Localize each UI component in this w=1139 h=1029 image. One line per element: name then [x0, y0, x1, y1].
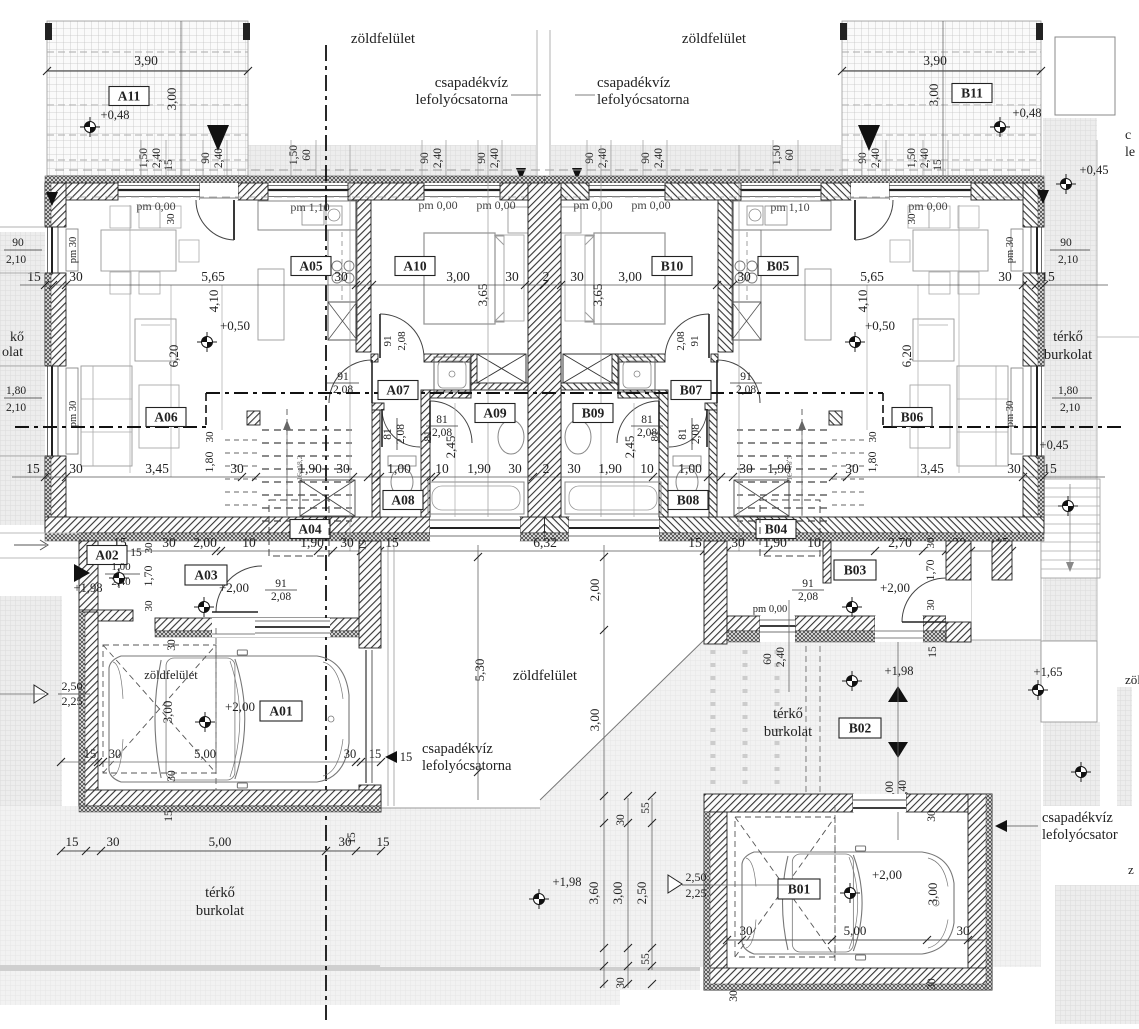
svg-text:90: 90	[640, 152, 652, 164]
svg-text:3,00: 3,00	[926, 84, 941, 107]
svg-text:2,08: 2,08	[690, 424, 702, 444]
svg-text:15: 15	[688, 535, 702, 550]
svg-text:15: 15	[369, 747, 382, 761]
svg-text:5,00: 5,00	[209, 834, 232, 849]
svg-text:3,45: 3,45	[145, 461, 169, 476]
svg-text:2,00: 2,00	[193, 535, 217, 550]
svg-text:zöldfelület: zöldfelület	[351, 31, 416, 47]
svg-text:B09: B09	[582, 406, 605, 421]
svg-text:5,30: 5,30	[472, 659, 487, 682]
svg-text:30: 30	[162, 535, 176, 550]
svg-text:zöldfelület: zöldfelület	[513, 668, 578, 684]
svg-text:2,08: 2,08	[395, 424, 407, 444]
svg-text:pm 0,00: pm 0,00	[418, 198, 457, 212]
svg-text:2,25: 2,25	[62, 694, 83, 708]
svg-text:30: 30	[737, 269, 751, 284]
svg-text:3,90: 3,90	[923, 53, 947, 68]
svg-text:30: 30	[336, 461, 350, 476]
svg-text:kő: kő	[10, 330, 24, 345]
svg-text:2,45: 2,45	[622, 436, 637, 459]
svg-text:B05: B05	[767, 259, 790, 274]
svg-text:15: 15	[163, 159, 175, 171]
svg-text:1,80: 1,80	[865, 452, 879, 473]
svg-text:2,50: 2,50	[62, 679, 83, 693]
svg-text:térkő: térkő	[1053, 329, 1083, 345]
svg-text:pm 30: pm 30	[68, 401, 79, 428]
svg-text:pm 0,00: pm 0,00	[631, 198, 670, 212]
svg-text:55: 55	[640, 953, 652, 965]
svg-text:2,08: 2,08	[333, 384, 353, 396]
svg-text:15: 15	[84, 747, 97, 761]
svg-text:91: 91	[275, 578, 287, 590]
svg-text:pm 30: pm 30	[1005, 237, 1016, 264]
svg-text:1,90: 1,90	[598, 461, 622, 476]
svg-text:+2,00: +2,00	[872, 867, 902, 882]
svg-text:30: 30	[867, 431, 879, 443]
svg-text:+0,50: +0,50	[220, 318, 250, 333]
svg-text:2,40: 2,40	[489, 148, 501, 168]
svg-text:90: 90	[12, 237, 24, 249]
svg-text:2,40: 2,40	[919, 148, 931, 168]
svg-text:2,40: 2,40	[151, 148, 163, 168]
svg-text:2,40: 2,40	[597, 148, 609, 168]
svg-text:91: 91	[740, 371, 752, 383]
svg-text:90: 90	[200, 152, 212, 164]
svg-text:30: 30	[508, 461, 522, 476]
svg-text:c: c	[1125, 128, 1131, 143]
svg-text:B04: B04	[765, 522, 788, 537]
svg-text:burkolat: burkolat	[196, 903, 244, 919]
svg-text:81: 81	[641, 414, 653, 426]
svg-text:2,40: 2,40	[432, 148, 444, 168]
svg-text:60: 60	[762, 653, 774, 665]
svg-text:4,10: 4,10	[206, 290, 221, 313]
svg-text:81: 81	[382, 428, 394, 440]
svg-text:+1,98: +1,98	[553, 875, 582, 889]
svg-text:15: 15	[932, 159, 944, 171]
svg-text:2,10: 2,10	[6, 254, 26, 266]
svg-text:pm 0,00: pm 0,00	[573, 198, 612, 212]
svg-text:2,08: 2,08	[736, 384, 756, 396]
svg-text:2,08: 2,08	[432, 427, 452, 439]
svg-text:6,20: 6,20	[166, 345, 181, 368]
svg-text:2,40: 2,40	[213, 148, 225, 168]
svg-text:+2,00: +2,00	[880, 580, 910, 595]
svg-text:15: 15	[26, 461, 40, 476]
svg-text:2,50: 2,50	[634, 882, 649, 905]
svg-text:pm 0,00: pm 0,00	[136, 199, 175, 213]
svg-text:A01: A01	[269, 704, 292, 719]
svg-text:1,80: 1,80	[1058, 385, 1078, 397]
svg-text:15: 15	[27, 269, 41, 284]
svg-text:1,00: 1,00	[387, 461, 411, 476]
svg-text:2,40: 2,40	[775, 647, 787, 667]
svg-text:30: 30	[334, 269, 348, 284]
svg-text:térkő: térkő	[205, 885, 235, 901]
svg-text:csapadékvíz: csapadékvíz	[1042, 810, 1113, 826]
svg-text:2,10: 2,10	[1060, 402, 1080, 414]
svg-text:A10: A10	[403, 259, 426, 274]
svg-text:burkolat: burkolat	[764, 724, 812, 740]
svg-text:1,00: 1,00	[678, 461, 702, 476]
svg-text:1,70: 1,70	[923, 560, 937, 581]
svg-text:6,32: 6,32	[533, 535, 557, 550]
svg-text:+0,50: +0,50	[865, 318, 895, 333]
svg-text:le: le	[1125, 145, 1135, 160]
svg-text:30: 30	[615, 977, 627, 989]
svg-text:2,08: 2,08	[637, 427, 657, 439]
svg-text:lefolyócsatorna: lefolyócsatorna	[597, 92, 690, 108]
svg-text:A11: A11	[118, 89, 141, 104]
svg-text:91: 91	[337, 371, 349, 383]
svg-text:3,00: 3,00	[925, 883, 940, 906]
svg-text:90: 90	[584, 152, 596, 164]
svg-text:30: 30	[739, 461, 753, 476]
svg-text:3,65: 3,65	[590, 284, 605, 307]
svg-text:B06: B06	[901, 410, 924, 425]
svg-text:pm 0,00: pm 0,00	[753, 604, 787, 615]
svg-text:30: 30	[344, 747, 357, 761]
svg-text:4,10: 4,10	[855, 290, 870, 313]
svg-text:30: 30	[69, 269, 83, 284]
svg-text:+0,45: +0,45	[1080, 163, 1109, 177]
svg-text:B10: B10	[661, 259, 684, 274]
svg-text:pm 1,10: pm 1,10	[290, 200, 329, 214]
svg-text:A05: A05	[299, 259, 322, 274]
svg-text:2: 2	[543, 269, 550, 284]
svg-text:15: 15	[66, 834, 79, 849]
svg-text:+1,98: +1,98	[74, 581, 103, 595]
svg-text:A09: A09	[483, 406, 506, 421]
svg-text:15: 15	[385, 535, 399, 550]
svg-text:1,00: 1,00	[111, 561, 131, 573]
svg-text:B11: B11	[961, 86, 983, 101]
svg-text:zöldfelüle: zöldfelüle	[1125, 672, 1139, 687]
svg-text:30: 30	[505, 269, 519, 284]
svg-text:15: 15	[357, 539, 369, 551]
svg-text:térkő: térkő	[773, 706, 803, 722]
svg-text:A04: A04	[298, 522, 321, 537]
svg-text:30: 30	[230, 461, 244, 476]
svg-text:2,40: 2,40	[870, 148, 882, 168]
svg-text:+2,00: +2,00	[219, 580, 249, 595]
svg-text:2,45: 2,45	[443, 436, 458, 459]
svg-text:30: 30	[925, 537, 937, 549]
svg-text:30: 30	[340, 535, 354, 550]
svg-text:1,80: 1,80	[202, 452, 216, 473]
svg-text:30: 30	[906, 213, 918, 225]
svg-text:2,40: 2,40	[653, 148, 665, 168]
svg-text:30: 30	[109, 747, 122, 761]
svg-text:30: 30	[845, 461, 859, 476]
svg-text:1,50: 1,50	[906, 148, 918, 168]
svg-text:30: 30	[165, 213, 177, 225]
svg-text:+0,45: +0,45	[1040, 438, 1069, 452]
svg-text:6,20: 6,20	[899, 345, 914, 368]
svg-text:1,50: 1,50	[138, 148, 150, 168]
svg-text:30: 30	[107, 834, 120, 849]
svg-text:lefolyócsatorna: lefolyócsatorna	[416, 92, 509, 108]
svg-text:2,70: 2,70	[888, 535, 912, 550]
svg-text:2,00: 2,00	[587, 579, 602, 602]
svg-text:pm 0,00: pm 0,00	[908, 199, 947, 213]
svg-text:15: 15	[163, 810, 175, 822]
svg-text:3,00: 3,00	[610, 882, 625, 905]
svg-text:1,70: 1,70	[141, 566, 155, 587]
svg-text:90: 90	[857, 152, 869, 164]
svg-text:30: 30	[926, 978, 938, 990]
svg-text:pm 30: pm 30	[68, 237, 79, 264]
svg-text:15: 15	[927, 646, 939, 658]
svg-text:30: 30	[925, 599, 937, 611]
svg-text:30: 30	[731, 535, 745, 550]
svg-text:A03: A03	[194, 568, 217, 583]
svg-text:2,08: 2,08	[396, 331, 408, 351]
svg-text:lefolyócsatorna: lefolyócsatorna	[422, 758, 512, 774]
svg-text:B07: B07	[680, 383, 703, 398]
svg-text:10: 10	[640, 461, 654, 476]
svg-text:+1,65: +1,65	[1034, 665, 1063, 679]
svg-text:30: 30	[166, 639, 178, 651]
svg-text:91: 91	[689, 336, 701, 347]
svg-text:2,10: 2,10	[1058, 254, 1078, 266]
svg-text:81: 81	[677, 428, 689, 440]
svg-text:z: z	[1128, 862, 1134, 877]
svg-text:5,00: 5,00	[844, 923, 867, 938]
svg-text:2,25: 2,25	[686, 886, 707, 900]
svg-text:B02: B02	[849, 721, 872, 736]
svg-text:30: 30	[728, 990, 740, 1002]
svg-text:A07: A07	[386, 383, 409, 398]
svg-text:2: 2	[543, 461, 550, 476]
svg-text:1,80: 1,80	[6, 385, 26, 397]
svg-text:2,08: 2,08	[271, 591, 291, 603]
svg-text:1,50: 1,50	[288, 145, 300, 165]
svg-text:pm 1,10: pm 1,10	[770, 200, 809, 214]
svg-text:3,60: 3,60	[586, 882, 601, 905]
svg-text:zöldfelület: zöldfelület	[144, 668, 198, 682]
svg-text:1,90: 1,90	[467, 461, 491, 476]
svg-text:A08: A08	[391, 493, 414, 508]
svg-text:15: 15	[1041, 269, 1055, 284]
svg-text:30: 30	[143, 542, 155, 554]
svg-text:90: 90	[1060, 237, 1072, 249]
svg-text:3,45: 3,45	[920, 461, 944, 476]
svg-text:2,08: 2,08	[798, 591, 818, 603]
svg-text:1,90: 1,90	[767, 461, 791, 476]
svg-text:3,00: 3,00	[160, 701, 175, 724]
svg-text:pm 30: pm 30	[1005, 401, 1016, 428]
svg-text:15: 15	[400, 750, 413, 764]
svg-text:+2,00: +2,00	[225, 699, 255, 714]
svg-text:81: 81	[436, 414, 448, 426]
svg-text:B03: B03	[844, 563, 867, 578]
svg-text:30: 30	[166, 770, 178, 782]
svg-text:csapadékvíz: csapadékvíz	[422, 741, 493, 757]
svg-text:5,00: 5,00	[194, 747, 216, 761]
svg-text:csapadékvíz: csapadékvíz	[597, 75, 671, 91]
svg-text:91: 91	[802, 578, 814, 590]
svg-text:B08: B08	[677, 493, 700, 508]
svg-text:10: 10	[435, 461, 449, 476]
svg-text:30: 30	[204, 431, 216, 443]
svg-text:60: 60	[784, 149, 796, 161]
svg-text:30: 30	[615, 814, 627, 826]
svg-text:91: 91	[382, 336, 394, 347]
svg-text:pm 0,00: pm 0,00	[476, 198, 515, 212]
svg-text:30: 30	[740, 923, 753, 938]
svg-text:B01: B01	[788, 882, 811, 897]
svg-text:15: 15	[346, 832, 358, 844]
svg-text:zöldfelület: zöldfelület	[682, 31, 747, 47]
svg-text:lefolyócsator: lefolyócsator	[1042, 827, 1118, 843]
svg-text:55: 55	[640, 802, 652, 814]
svg-text:+1,98: +1,98	[885, 664, 914, 678]
svg-text:3,90: 3,90	[134, 53, 158, 68]
svg-text:30: 30	[998, 269, 1012, 284]
svg-text:30: 30	[926, 810, 938, 822]
svg-text:3,00: 3,00	[587, 709, 602, 732]
svg-text:3,00: 3,00	[164, 88, 179, 111]
svg-text:3,00: 3,00	[618, 269, 642, 284]
svg-text:15: 15	[377, 834, 390, 849]
svg-text:csapadékvíz: csapadékvíz	[435, 75, 509, 91]
svg-text:2,50: 2,50	[686, 870, 707, 884]
svg-text:60: 60	[301, 149, 313, 161]
svg-text:2,08: 2,08	[675, 331, 687, 351]
svg-text:5,65: 5,65	[201, 269, 225, 284]
svg-text:5,65: 5,65	[860, 269, 884, 284]
svg-text:30: 30	[69, 461, 83, 476]
svg-text:30: 30	[1007, 461, 1021, 476]
svg-text:30: 30	[570, 269, 584, 284]
svg-text:30: 30	[567, 461, 581, 476]
svg-text:2,10: 2,10	[6, 402, 26, 414]
svg-text:30: 30	[143, 600, 155, 612]
svg-text:burkolat: burkolat	[1044, 347, 1092, 363]
svg-text:10: 10	[242, 535, 256, 550]
svg-text:olat: olat	[2, 345, 23, 360]
svg-text:30: 30	[957, 923, 970, 938]
svg-text:3,00: 3,00	[446, 269, 470, 284]
svg-text:90: 90	[419, 152, 431, 164]
svg-text:3,65: 3,65	[475, 284, 490, 307]
svg-text:15: 15	[130, 547, 142, 559]
svg-text:15: 15	[1043, 461, 1057, 476]
svg-text:+0,48: +0,48	[101, 108, 130, 122]
svg-text:10: 10	[807, 535, 821, 550]
svg-text:+0,48: +0,48	[1013, 106, 1042, 120]
svg-text:A06: A06	[154, 410, 177, 425]
svg-text:1,90: 1,90	[298, 461, 322, 476]
